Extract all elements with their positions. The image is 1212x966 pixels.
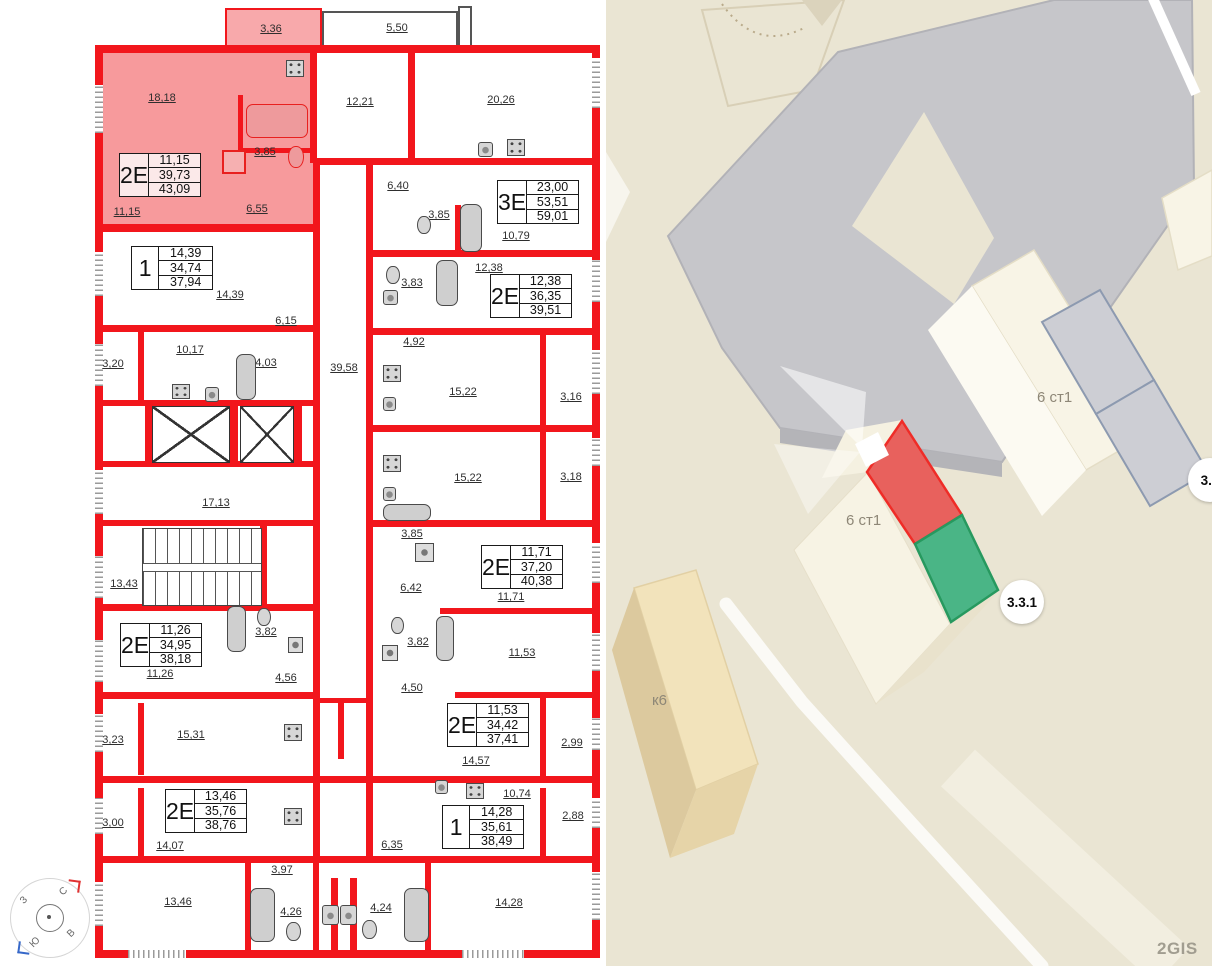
washer-icon (415, 543, 434, 562)
elevator-shaft (152, 406, 230, 463)
room-area-label: 11,15 (114, 206, 141, 218)
unit-area-rows: 11,1539,7343,09 (149, 154, 200, 196)
stove-icon (172, 384, 190, 399)
room-area-label: 3,36 (260, 23, 281, 35)
staircase (142, 528, 262, 606)
unit-type-label: 1 (132, 247, 159, 289)
room-area-label: 4,24 (370, 902, 391, 914)
room-area-label: 14,28 (495, 897, 523, 909)
stove-icon (507, 139, 525, 156)
room-area-label: 3,82 (407, 636, 428, 648)
toilet-icon (288, 146, 304, 168)
window-hatch (592, 438, 600, 466)
room-area-label: 10,17 (176, 344, 204, 356)
toilet-icon (362, 920, 377, 939)
unit-area-value: 34,42 (477, 717, 528, 731)
unit-type-label: 3Е (498, 181, 527, 223)
unit-info-box[interactable]: 2Е11,7137,2040,38 (481, 545, 563, 589)
room-area-label: 12,21 (346, 96, 374, 108)
unit-area-value: 43,09 (149, 182, 200, 196)
sink-icon (383, 487, 396, 501)
room-area-label: 13,43 (110, 578, 138, 590)
toilet-icon (386, 266, 400, 284)
sink-icon (205, 387, 219, 402)
wall-segment (540, 698, 546, 778)
room-area-label: 3,00 (102, 817, 123, 829)
unit-area-rows: 12,3836,3539,51 (520, 275, 571, 317)
window-hatch (592, 58, 600, 108)
room-area-label: 3,16 (560, 391, 581, 403)
elevator-shaft (240, 406, 294, 463)
floor-plan: 18,183,365,5012,2120,263,8511,156,556,40… (0, 0, 606, 966)
sink-icon (435, 780, 448, 794)
unit-area-rows: 23,0053,5159,01 (527, 181, 578, 223)
wall-segment (138, 788, 144, 856)
room-area-label: 3,18 (560, 471, 581, 483)
room-area-label: 6,15 (275, 315, 296, 327)
room-area-label: 15,31 (177, 729, 205, 741)
window-hatch (128, 950, 186, 958)
unit-area-value: 14,28 (470, 806, 523, 819)
unit-area-value: 40,38 (511, 574, 562, 588)
unit-area-value: 38,49 (470, 834, 523, 848)
unit-area-value: 13,46 (195, 790, 246, 803)
unit-area-value: 11,15 (149, 154, 200, 167)
wall-segment (145, 404, 152, 463)
room-area-label: 5,50 (386, 22, 407, 34)
window-hatch (592, 718, 600, 750)
room-area-label: 14,07 (156, 840, 184, 852)
wall-segment (95, 692, 317, 699)
room-area-label: 10,74 (503, 788, 531, 800)
wall-segment (95, 224, 317, 232)
wall-segment (540, 428, 546, 522)
unit-area-value: 37,41 (477, 732, 528, 746)
unit-area-value: 36,35 (520, 288, 571, 302)
unit-info-box[interactable]: 114,2835,6138,49 (442, 805, 524, 849)
room-area-label: 6,40 (387, 180, 408, 192)
room-area-label: 4,26 (280, 906, 301, 918)
unit-area-value: 37,20 (511, 559, 562, 573)
window-hatch (592, 350, 600, 394)
sink-icon (383, 290, 398, 305)
map-provider-watermark: 2GIS (1157, 939, 1198, 959)
shower-icon (222, 150, 246, 174)
window-hatch (462, 950, 524, 958)
window-hatch (592, 633, 600, 671)
unit-area-value: 59,01 (527, 209, 578, 223)
wall-segment (408, 45, 415, 163)
unit-area-rows: 11,7137,2040,38 (511, 546, 562, 588)
window-hatch (592, 798, 600, 828)
wall-segment (138, 328, 144, 402)
unit-type-label: 1 (443, 806, 470, 848)
unit-area-rows: 11,5334,4237,41 (477, 704, 528, 746)
bathtub-icon (436, 260, 458, 306)
unit-area-value: 38,18 (150, 652, 201, 666)
toilet-icon (417, 216, 431, 234)
room-area-label: 4,92 (403, 336, 424, 348)
unit-type-label: 2Е (491, 275, 520, 317)
unit-type-label: 2Е (166, 790, 195, 832)
unit-area-value: 35,61 (470, 819, 523, 833)
room-area-label: 3,82 (255, 626, 276, 638)
room-area-label: 3,23 (102, 734, 123, 746)
unit-area-rows: 11,2634,9538,18 (150, 624, 201, 666)
room-area-label: 15,22 (449, 386, 477, 398)
wall-segment (338, 703, 344, 759)
unit-area-value: 39,73 (149, 167, 200, 181)
window-hatch (95, 252, 103, 296)
stove-icon (284, 724, 302, 741)
room-area-label: 12,38 (475, 262, 503, 274)
compass-dot (47, 915, 51, 919)
toilet-icon (391, 617, 404, 634)
bathtub-icon (246, 104, 308, 138)
stove-icon (383, 455, 401, 472)
bathtub-icon (250, 888, 275, 942)
room-area-label: 6,55 (246, 203, 267, 215)
room-area-label: 14,39 (216, 289, 244, 301)
sink-icon (478, 142, 493, 157)
room-area-label: 3,83 (401, 277, 422, 289)
balcony-small (458, 6, 472, 49)
bathtub-icon (236, 354, 256, 400)
unit-area-value: 23,00 (527, 181, 578, 194)
washer-icon (382, 645, 398, 661)
room-area-label: 10,79 (502, 230, 530, 242)
room-area-label: 15,22 (454, 472, 482, 484)
wall-segment (372, 250, 600, 257)
window-hatch (95, 640, 103, 682)
wall-segment (313, 860, 319, 952)
room-area-label: 4,50 (401, 682, 422, 694)
bathtub-icon (460, 204, 482, 252)
unit-area-value: 53,51 (527, 194, 578, 208)
stove-icon (383, 365, 401, 382)
unit-info-box[interactable]: 3Е23,0053,5159,01 (497, 180, 579, 224)
unit-info-box[interactable]: 2Е12,3836,3539,51 (490, 274, 572, 318)
unit-type-label: 2Е (121, 624, 150, 666)
room-area-label: 20,26 (487, 94, 515, 106)
wall-segment (372, 425, 600, 432)
sink-icon (383, 397, 396, 411)
sink-icon (322, 905, 339, 925)
unit-area-value: 34,74 (159, 260, 212, 274)
unit-area-value: 11,71 (511, 546, 562, 559)
unit-area-value: 39,51 (520, 303, 571, 317)
room-area-label: 3,85 (254, 146, 275, 158)
room-area-label: 3,85 (428, 209, 449, 221)
unit-area-value: 35,76 (195, 803, 246, 817)
toilet-icon (286, 922, 301, 941)
room-area-label: 3,20 (102, 358, 123, 370)
wall-segment (540, 335, 546, 427)
wall-segment (95, 520, 317, 526)
window-hatch (95, 714, 103, 752)
compass[interactable]: С В Ю З (8, 876, 92, 960)
window-hatch (592, 543, 600, 583)
unit-info-box[interactable]: 2Е11,1539,7343,09 (119, 153, 201, 197)
unit-area-value: 38,76 (195, 818, 246, 832)
compass-north-mark (67, 879, 81, 893)
room-area-label: 3,85 (401, 528, 422, 540)
wall-segment (313, 158, 320, 858)
room-area-label: 4,03 (255, 357, 276, 369)
room-area-label: 4,56 (275, 672, 296, 684)
wall-segment (455, 692, 600, 698)
window-hatch (95, 85, 103, 133)
room-area-label: 11,71 (498, 591, 525, 603)
room-area-label: 18,18 (148, 92, 176, 104)
stove-icon (284, 808, 302, 825)
window-hatch (592, 260, 600, 302)
unit-info-box[interactable]: 2Е11,2634,9538,18 (120, 623, 202, 667)
room-area-label: 2,99 (561, 737, 582, 749)
wall-segment (95, 856, 600, 863)
room-area-label: 6,42 (400, 582, 421, 594)
room-area-label: 6,35 (381, 839, 402, 851)
room-area-label: 39,58 (330, 362, 358, 374)
wall-segment (366, 776, 373, 858)
wall-segment (294, 404, 302, 463)
unit-area-value: 11,53 (477, 704, 528, 717)
wall-segment (372, 328, 600, 335)
stove-icon (466, 783, 484, 799)
unit-area-rows: 14,2835,6138,49 (470, 806, 523, 848)
wall-segment (230, 404, 238, 463)
wall-segment (138, 703, 144, 775)
unit-info-box[interactable]: 2Е11,5334,4237,41 (447, 703, 529, 747)
window-hatch (95, 470, 103, 514)
map-canvas[interactable] (606, 0, 1212, 966)
bathtub-icon (227, 606, 246, 652)
wall-segment (372, 520, 600, 527)
unit-area-rows: 13,4635,7638,76 (195, 790, 246, 832)
washer-icon (288, 637, 303, 653)
wall-segment (540, 788, 546, 856)
stove-icon (286, 60, 304, 77)
wall-segment (238, 95, 243, 151)
room-area-label: 17,13 (202, 497, 230, 509)
room-area-label: 3,97 (271, 864, 292, 876)
room-area-label: 14,57 (462, 755, 490, 767)
wall-segment (95, 776, 600, 783)
unit-type-label: 2Е (482, 546, 511, 588)
unit-area-rows: 14,3934,7437,94 (159, 247, 212, 289)
unit-info-box[interactable]: 114,3934,7437,94 (131, 246, 213, 290)
unit-type-label: 2Е (448, 704, 477, 746)
unit-area-value: 34,95 (150, 637, 201, 651)
room-area-label: 2,88 (562, 810, 583, 822)
window-hatch (95, 556, 103, 598)
wall-segment (313, 158, 600, 165)
room-area-label: 11,26 (147, 668, 174, 680)
wall-segment (310, 45, 317, 163)
unit-area-value: 14,39 (159, 247, 212, 260)
bathtub-icon (436, 616, 454, 661)
wall-segment (440, 608, 600, 614)
sink-icon (340, 905, 357, 925)
window-hatch (592, 872, 600, 920)
bathtub-icon (404, 888, 429, 942)
unit-area-value: 12,38 (520, 275, 571, 288)
unit-area-value: 11,26 (150, 624, 201, 637)
unit-info-box[interactable]: 2Е13,4635,7638,76 (165, 789, 247, 833)
room-area-label: 13,46 (164, 896, 192, 908)
room-area-label: 11,53 (509, 647, 536, 659)
selected-apartment-area[interactable] (99, 49, 315, 228)
unit-area-value: 37,94 (159, 275, 212, 289)
unit-type-label: 2Е (120, 154, 149, 196)
bathtub-icon (383, 504, 431, 521)
section-badge[interactable]: 3.3.1 (1000, 580, 1044, 624)
wall-segment (95, 45, 600, 53)
toilet-icon (257, 608, 271, 626)
window-hatch (95, 882, 103, 926)
